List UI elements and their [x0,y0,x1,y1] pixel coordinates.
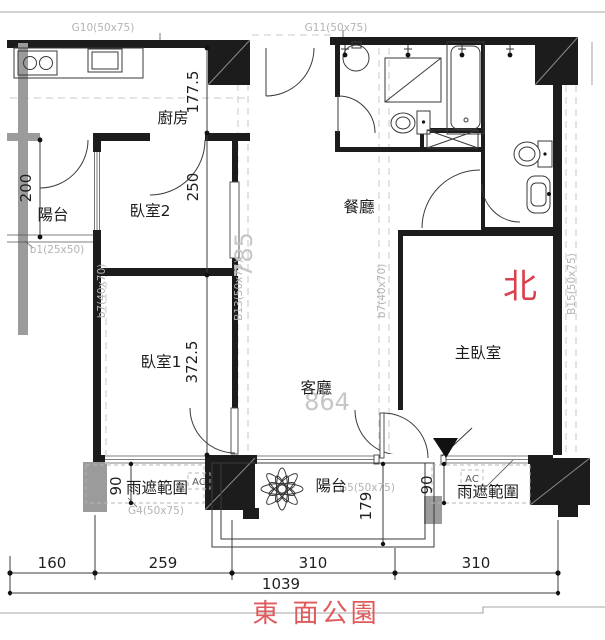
dim-balcony-left: 200 [17,174,35,203]
room-bedroom1: 臥室1 [141,353,182,371]
rain-label-left: 雨遮範圍 [126,479,188,497]
dim-seg4: 310 [462,554,491,572]
dim-rain-right: 90 [418,475,436,494]
basin2-icon [527,176,550,213]
dim-seg1: 160 [38,554,67,572]
beam-g11: G11(50x75) [305,22,368,34]
windows [93,152,528,464]
toilet2-icon [514,142,540,166]
plant-icon [261,468,303,510]
rain-label-right: 雨遮範圍 [457,483,519,501]
site-boundary-lines [0,12,605,613]
beam-b1: b1(25x50) [30,244,84,256]
dim-bedroom2: 250 [184,173,202,202]
bathtub-icon [447,42,484,134]
beam-g10: G10(50x75) [72,22,135,34]
dim-balcony-depth: 179 [357,492,375,521]
room-balcony-bottom: 陽台 [315,477,346,495]
room-dining: 餐廳 [343,197,374,216]
toilet-icon [391,113,415,133]
dim-seg3: 310 [299,554,328,572]
doors [40,48,520,465]
beam-b15: B15(50x75) [566,253,578,315]
beam-g4: G4(50x75) [128,505,184,517]
room-bedroom2: 臥室2 [130,202,171,220]
north-label: 北 [503,267,537,307]
dim-kitchen-depth: 177.5 [184,71,202,114]
beam-b7-right: b7(40x70) [376,264,388,318]
beam-b7-left: b7(40x70) [96,264,108,318]
ac-label-right: AC [465,474,479,485]
dim-seg2: 259 [149,554,178,572]
bathroom2-fixtures [514,141,552,213]
dim-bedroom1: 372.5 [183,341,201,384]
beam-b13: B13(50x75) [233,259,245,321]
room-living: 客廳 [300,378,331,397]
floor-plan-page: 177.5 200 250 372.5 785 864 90 90 179 16… [0,0,605,640]
beam-g5: G5(50x75) [339,482,395,494]
room-kitchen: 廚房 [157,108,188,127]
dim-total: 1039 [262,575,300,593]
dim-rain-left: 90 [107,476,125,495]
site-label: 東 面公園 [252,599,379,629]
kitchen-fixtures [14,48,143,78]
room-master: 主臥室 [455,344,502,362]
floor-plan-drawing: 177.5 200 250 372.5 785 864 90 90 179 16… [0,0,605,640]
ac-label-left: AC [192,477,206,488]
room-balcony-left: 陽台 [37,206,68,224]
